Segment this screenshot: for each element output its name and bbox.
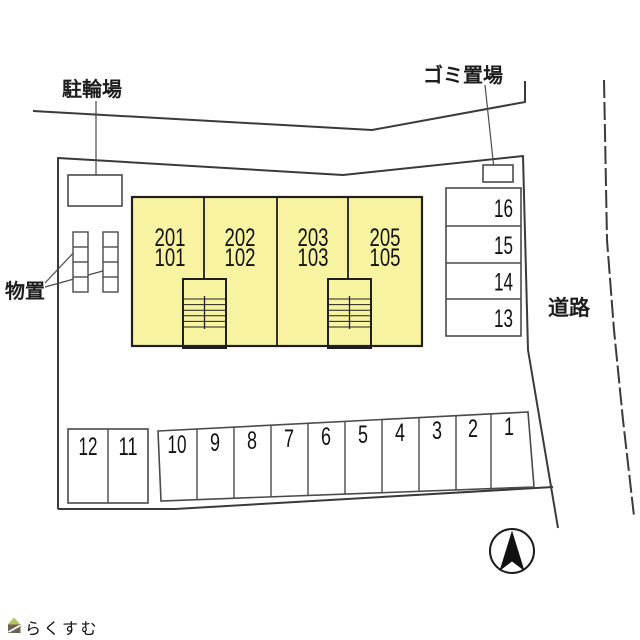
compass: [490, 529, 534, 573]
parking-space-number: 7: [284, 425, 294, 453]
garbage-area-label: ゴミ置場: [423, 63, 503, 87]
road-label: 道路: [548, 296, 591, 320]
parking-space-number: 16: [494, 195, 513, 223]
bicycle-parking-label: 駐輪場: [62, 77, 122, 101]
logo: らくすむ: [8, 618, 100, 639]
parking-right-column: 16 15 14 13: [446, 188, 521, 336]
storage-unit-2: [103, 232, 118, 292]
garbage-area-box: [483, 165, 513, 182]
parking-left-group: 12 11: [68, 429, 148, 503]
parking-space-number: 5: [358, 421, 368, 449]
storage-label: 物置: [5, 279, 45, 303]
parking-space-number: 2: [468, 415, 478, 443]
parking-space-number: 13: [494, 305, 513, 333]
parking-space-number: 1: [504, 413, 514, 441]
road-edge-line: [604, 80, 634, 516]
parking-space-number: 6: [321, 423, 331, 451]
parking-space-number: 9: [210, 429, 220, 457]
parking-space-number: 8: [247, 427, 257, 455]
site-plan-page: 道路 駐輪場 ゴミ置場 物置: [0, 0, 640, 640]
parking-space-number: 15: [494, 232, 513, 260]
parking-space-number: 10: [168, 431, 187, 459]
parking-space-number: 4: [395, 419, 405, 447]
stairwell-2: [328, 279, 371, 348]
bicycle-parking-area: [68, 175, 122, 206]
unit-number: 101: [155, 244, 186, 272]
site-plan-drawing: 道路 駐輪場 ゴミ置場 物置: [0, 0, 640, 640]
building: 201 101 202 102 203 103 205 105: [132, 197, 422, 348]
parking-space-number: 3: [432, 417, 442, 445]
unit-number: 102: [225, 244, 256, 272]
parking-space-number: 12: [79, 433, 98, 461]
storage-unit-1: [73, 232, 88, 292]
unit-number: 105: [370, 244, 401, 272]
parking-bottom-row: 10 9 8 7 6 5 4 3 2 1: [158, 412, 534, 501]
logo-text: らくすむ: [25, 620, 99, 638]
stairwell-1: [183, 279, 226, 348]
parking-space-number: 14: [494, 269, 513, 297]
parking-space-number: 11: [119, 433, 138, 461]
house-roof-icon: [8, 618, 21, 625]
unit-number: 103: [298, 244, 329, 272]
garbage-area-pointer-line: [485, 85, 494, 169]
